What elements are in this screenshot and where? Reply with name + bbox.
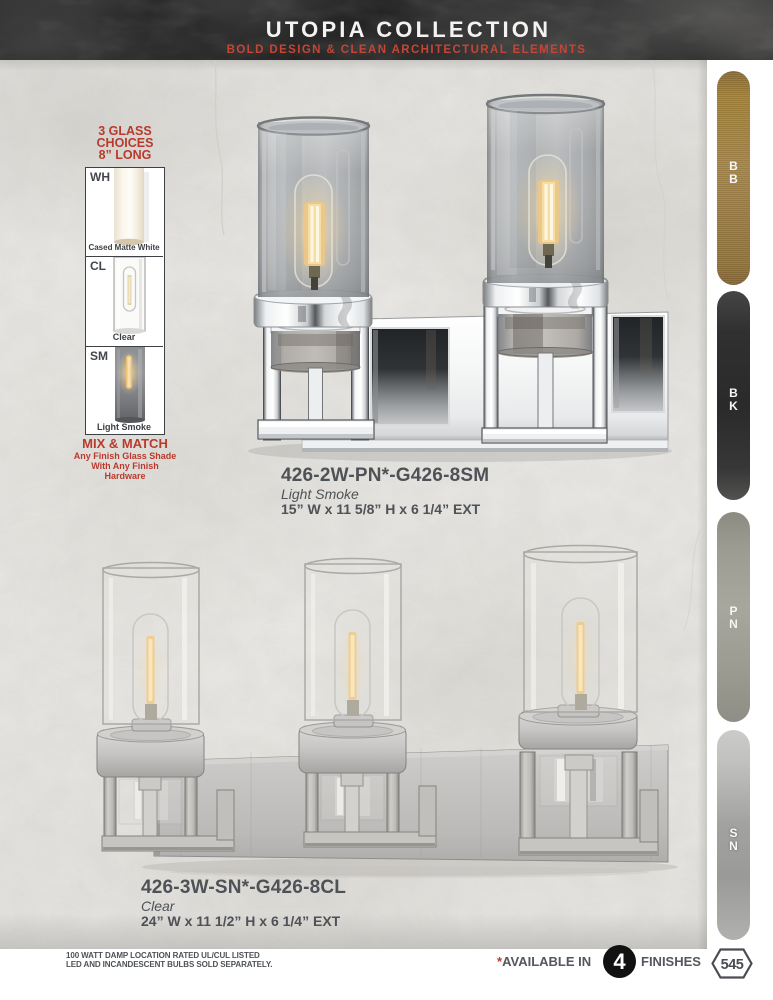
svg-text:545: 545 (721, 957, 744, 973)
